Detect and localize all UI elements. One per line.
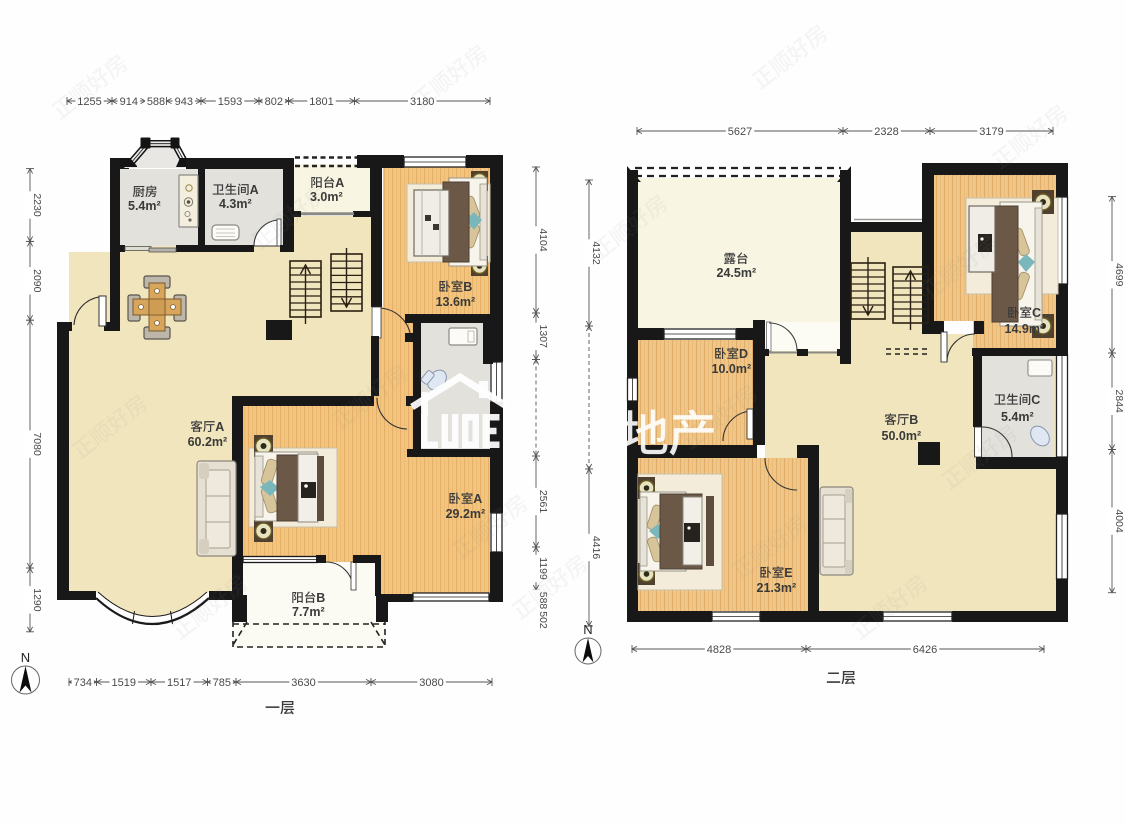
svg-text:10.0m²: 10.0m² xyxy=(712,362,752,376)
svg-text:C: C xyxy=(1031,393,1040,407)
svg-text:4699: 4699 xyxy=(1113,263,1125,287)
svg-text:50.0m²: 50.0m² xyxy=(882,429,922,443)
svg-text:588: 588 xyxy=(147,96,165,108)
svg-text:2230: 2230 xyxy=(31,193,43,217)
svg-text:4416: 4416 xyxy=(590,536,602,560)
svg-text:B: B xyxy=(463,280,472,294)
svg-text:A: A xyxy=(473,492,482,506)
svg-text:5.4m²: 5.4m² xyxy=(128,199,161,213)
svg-text:7080: 7080 xyxy=(31,432,43,456)
svg-text:B: B xyxy=(909,413,918,427)
svg-text:785: 785 xyxy=(213,677,231,689)
svg-text:734: 734 xyxy=(74,677,92,689)
svg-text:2328: 2328 xyxy=(874,126,898,138)
svg-text:24.5m²: 24.5m² xyxy=(717,266,757,280)
svg-text:802: 802 xyxy=(265,96,283,108)
svg-text:3080: 3080 xyxy=(419,677,443,689)
svg-text:1307: 1307 xyxy=(537,325,549,349)
svg-text:4828: 4828 xyxy=(707,644,731,656)
svg-text:D: D xyxy=(739,347,748,361)
svg-text:4004: 4004 xyxy=(1113,509,1125,533)
svg-text:21.3m²: 21.3m² xyxy=(757,581,797,595)
svg-text:14.9m²: 14.9m² xyxy=(1005,322,1045,336)
svg-text:N: N xyxy=(583,622,592,637)
svg-text:3179: 3179 xyxy=(979,126,1003,138)
svg-text:4104: 4104 xyxy=(537,228,549,252)
svg-text:5627: 5627 xyxy=(728,126,752,138)
svg-text:N: N xyxy=(21,650,30,665)
svg-text:1801: 1801 xyxy=(309,96,333,108)
svg-text:502: 502 xyxy=(537,611,549,629)
svg-text:29.2m²: 29.2m² xyxy=(446,507,486,521)
svg-text:E: E xyxy=(784,566,792,580)
svg-text:6426: 6426 xyxy=(913,644,937,656)
svg-text:5.4m²: 5.4m² xyxy=(1001,410,1034,424)
svg-text:7.7m²: 7.7m² xyxy=(292,605,325,619)
svg-text:13.6m²: 13.6m² xyxy=(436,295,476,309)
svg-text:4.3m²: 4.3m² xyxy=(219,197,252,211)
svg-text:60.2m²: 60.2m² xyxy=(188,435,228,449)
svg-text:914: 914 xyxy=(120,96,138,108)
svg-text:C: C xyxy=(1032,306,1041,320)
svg-text:1519: 1519 xyxy=(112,677,136,689)
svg-text:1593: 1593 xyxy=(218,96,242,108)
svg-text:943: 943 xyxy=(175,96,193,108)
svg-text:3630: 3630 xyxy=(291,677,315,689)
svg-text:2844: 2844 xyxy=(1113,390,1125,414)
svg-text:B: B xyxy=(316,591,325,605)
svg-text:2561: 2561 xyxy=(537,490,549,514)
svg-text:1517: 1517 xyxy=(167,677,191,689)
svg-text:A: A xyxy=(215,420,224,434)
svg-text:A: A xyxy=(335,176,344,190)
svg-text:A: A xyxy=(250,183,259,197)
svg-text:2090: 2090 xyxy=(31,269,43,293)
svg-text:1290: 1290 xyxy=(31,588,43,612)
